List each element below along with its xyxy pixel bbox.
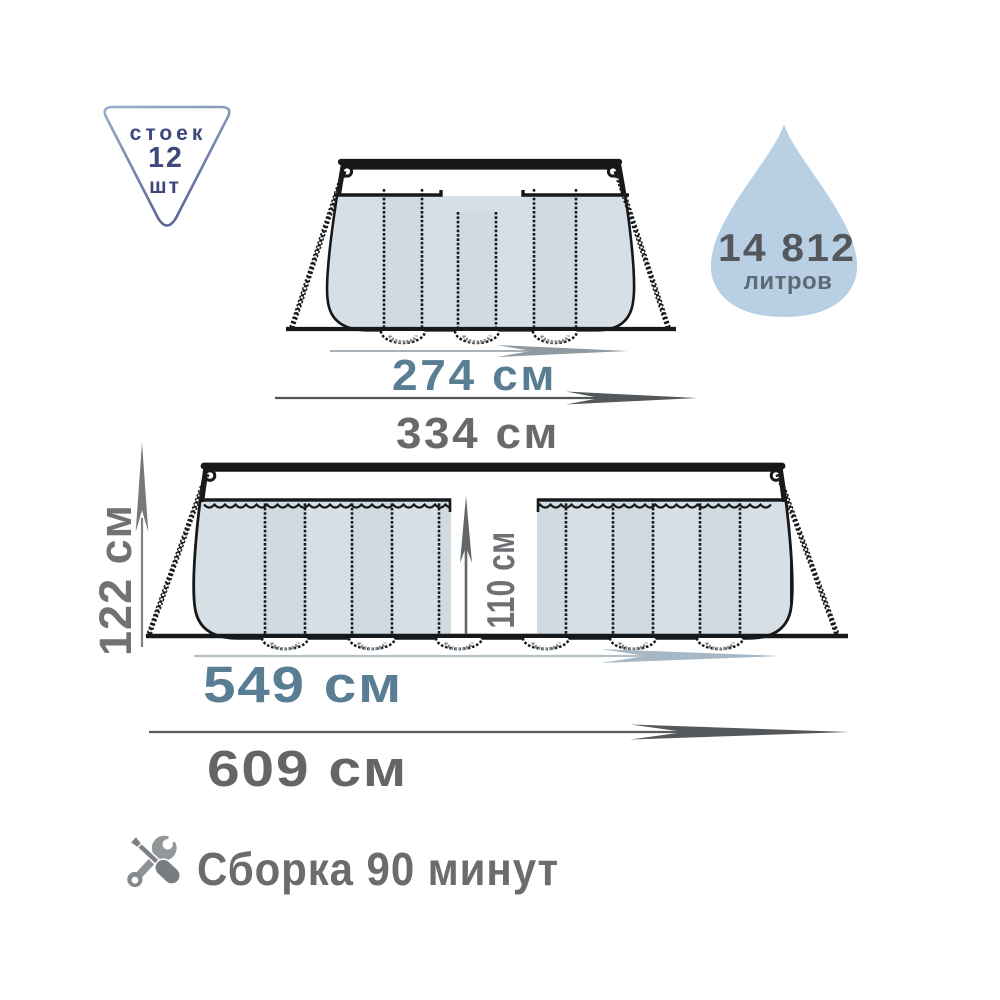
svg-text:274 см: 274 см bbox=[392, 351, 557, 400]
svg-text:110 см: 110 см bbox=[480, 532, 523, 629]
svg-text:литров: литров bbox=[744, 268, 833, 295]
svg-text:12: 12 bbox=[148, 142, 184, 174]
svg-text:609 см: 609 см bbox=[207, 740, 408, 797]
svg-text:549 см: 549 см bbox=[203, 656, 403, 713]
svg-text:Сборка 90 минут: Сборка 90 минут bbox=[197, 843, 559, 895]
svg-text:14 812: 14 812 bbox=[718, 227, 856, 270]
svg-text:шт: шт bbox=[149, 175, 181, 198]
svg-text:122 см: 122 см bbox=[90, 504, 141, 656]
svg-text:334 см: 334 см bbox=[396, 409, 560, 458]
